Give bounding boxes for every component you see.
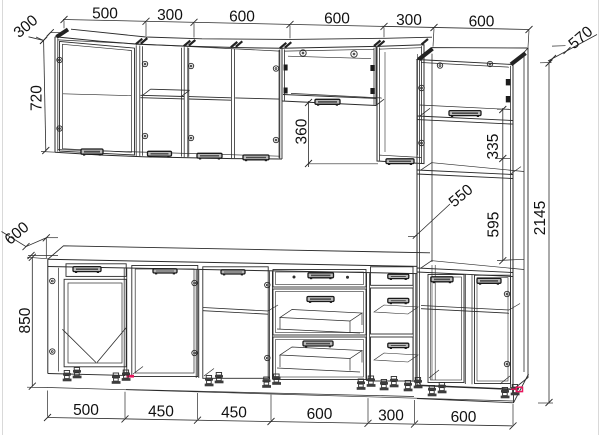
svg-text:360: 360	[294, 118, 311, 144]
svg-text:600: 600	[324, 11, 350, 28]
svg-text:850: 850	[17, 307, 34, 333]
svg-text:450: 450	[221, 405, 247, 422]
svg-text:600: 600	[229, 9, 255, 26]
svg-text:450: 450	[148, 403, 174, 420]
svg-text:720: 720	[28, 85, 45, 111]
svg-text:300: 300	[396, 12, 422, 29]
svg-text:335: 335	[485, 134, 502, 160]
svg-text:2145: 2145	[532, 201, 549, 235]
svg-text:600: 600	[451, 409, 477, 426]
svg-text:600: 600	[307, 406, 333, 423]
svg-text:300: 300	[378, 408, 404, 425]
svg-text:500: 500	[73, 402, 99, 419]
svg-text:500: 500	[92, 6, 118, 23]
svg-text:300: 300	[157, 7, 183, 24]
svg-text:595: 595	[485, 212, 502, 238]
svg-text:600: 600	[469, 14, 495, 31]
